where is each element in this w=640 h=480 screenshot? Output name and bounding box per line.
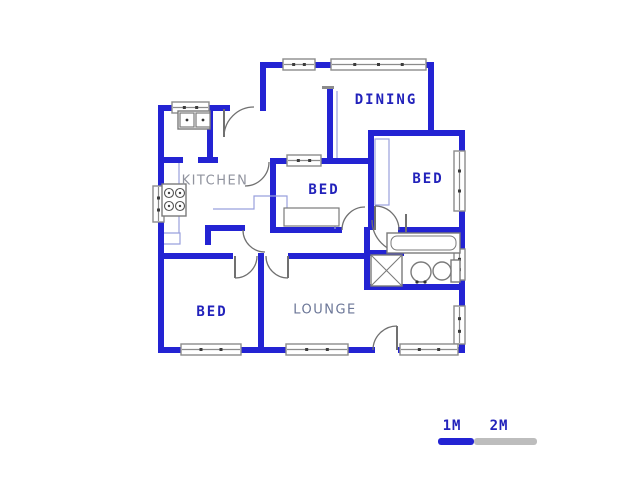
built-in-cupboard: [375, 139, 389, 205]
door-swing-arc: [245, 162, 269, 186]
scale-bar-1m-segment: [438, 438, 474, 445]
room-label-bed-topright: BED: [412, 171, 443, 187]
wall: [327, 88, 333, 164]
door-swing-arc: [243, 230, 265, 252]
wall: [364, 227, 370, 290]
room-label-dining: DINING: [355, 92, 418, 108]
door-swing-arc: [375, 206, 399, 230]
room-label-lounge: LOUNGE: [293, 303, 357, 318]
wall: [428, 62, 434, 136]
wall: [368, 130, 465, 136]
wash-basin: [411, 262, 431, 282]
stove-burner-center: [179, 205, 181, 207]
window-tick: [297, 159, 300, 162]
door-swing-arc: [266, 256, 288, 278]
counter-line: [164, 233, 180, 244]
wall: [205, 225, 211, 245]
window-tick: [183, 106, 186, 109]
sink-drain: [186, 119, 189, 122]
window-tick: [326, 348, 329, 351]
built-in-cupboard: [284, 208, 339, 226]
wall: [198, 157, 218, 163]
stove-burner-center: [168, 192, 170, 194]
wall: [258, 253, 264, 353]
window-tick: [437, 348, 440, 351]
window-tick: [195, 106, 198, 109]
window-tick: [292, 63, 295, 66]
stove-burner-center: [179, 192, 181, 194]
wall: [398, 227, 465, 233]
floorplan-page: DINING BED BED BED KITCHEN LOUNGE 1M 2M: [0, 0, 640, 480]
window-tick: [200, 348, 203, 351]
window-tick: [401, 63, 404, 66]
door-swing-arc: [342, 207, 365, 230]
door-swing-arc: [224, 107, 254, 137]
window-tick: [353, 63, 356, 66]
window-tick: [418, 348, 421, 351]
window-tick: [458, 330, 461, 333]
toilet-bowl: [433, 262, 451, 280]
scale-bar-2m-segment: [474, 438, 537, 445]
window-tick: [305, 348, 308, 351]
sink-drain: [202, 119, 205, 122]
wall: [368, 130, 374, 230]
wall: [158, 157, 183, 163]
basin-tap: [415, 280, 418, 283]
wall: [158, 105, 164, 353]
wall: [158, 253, 233, 259]
scale-label-1m: 1M: [443, 418, 462, 434]
wall-end-cap: [322, 86, 334, 89]
door-swing-arc: [235, 256, 257, 278]
wall: [260, 62, 266, 111]
toilet-cistern: [451, 260, 460, 282]
door-swing-arc: [373, 326, 397, 350]
window-tick: [458, 190, 461, 193]
wall: [270, 227, 342, 233]
window-tick: [157, 197, 160, 200]
floorplan-drawing: [0, 0, 640, 480]
window-tick: [458, 170, 461, 173]
window-tick: [157, 209, 160, 212]
window-tick: [308, 159, 311, 162]
wall: [288, 253, 370, 259]
window-tick: [458, 317, 461, 320]
room-label-kitchen: KITCHEN: [182, 174, 249, 189]
window-tick: [220, 348, 223, 351]
room-label-bed-middle: BED: [308, 182, 339, 198]
room-label-bed-bottomleft: BED: [196, 304, 227, 320]
stove-burner-center: [168, 205, 170, 207]
window-tick: [303, 63, 306, 66]
basin-tap: [423, 280, 426, 283]
scale-label-2m: 2M: [490, 418, 509, 434]
window-tick: [377, 63, 380, 66]
